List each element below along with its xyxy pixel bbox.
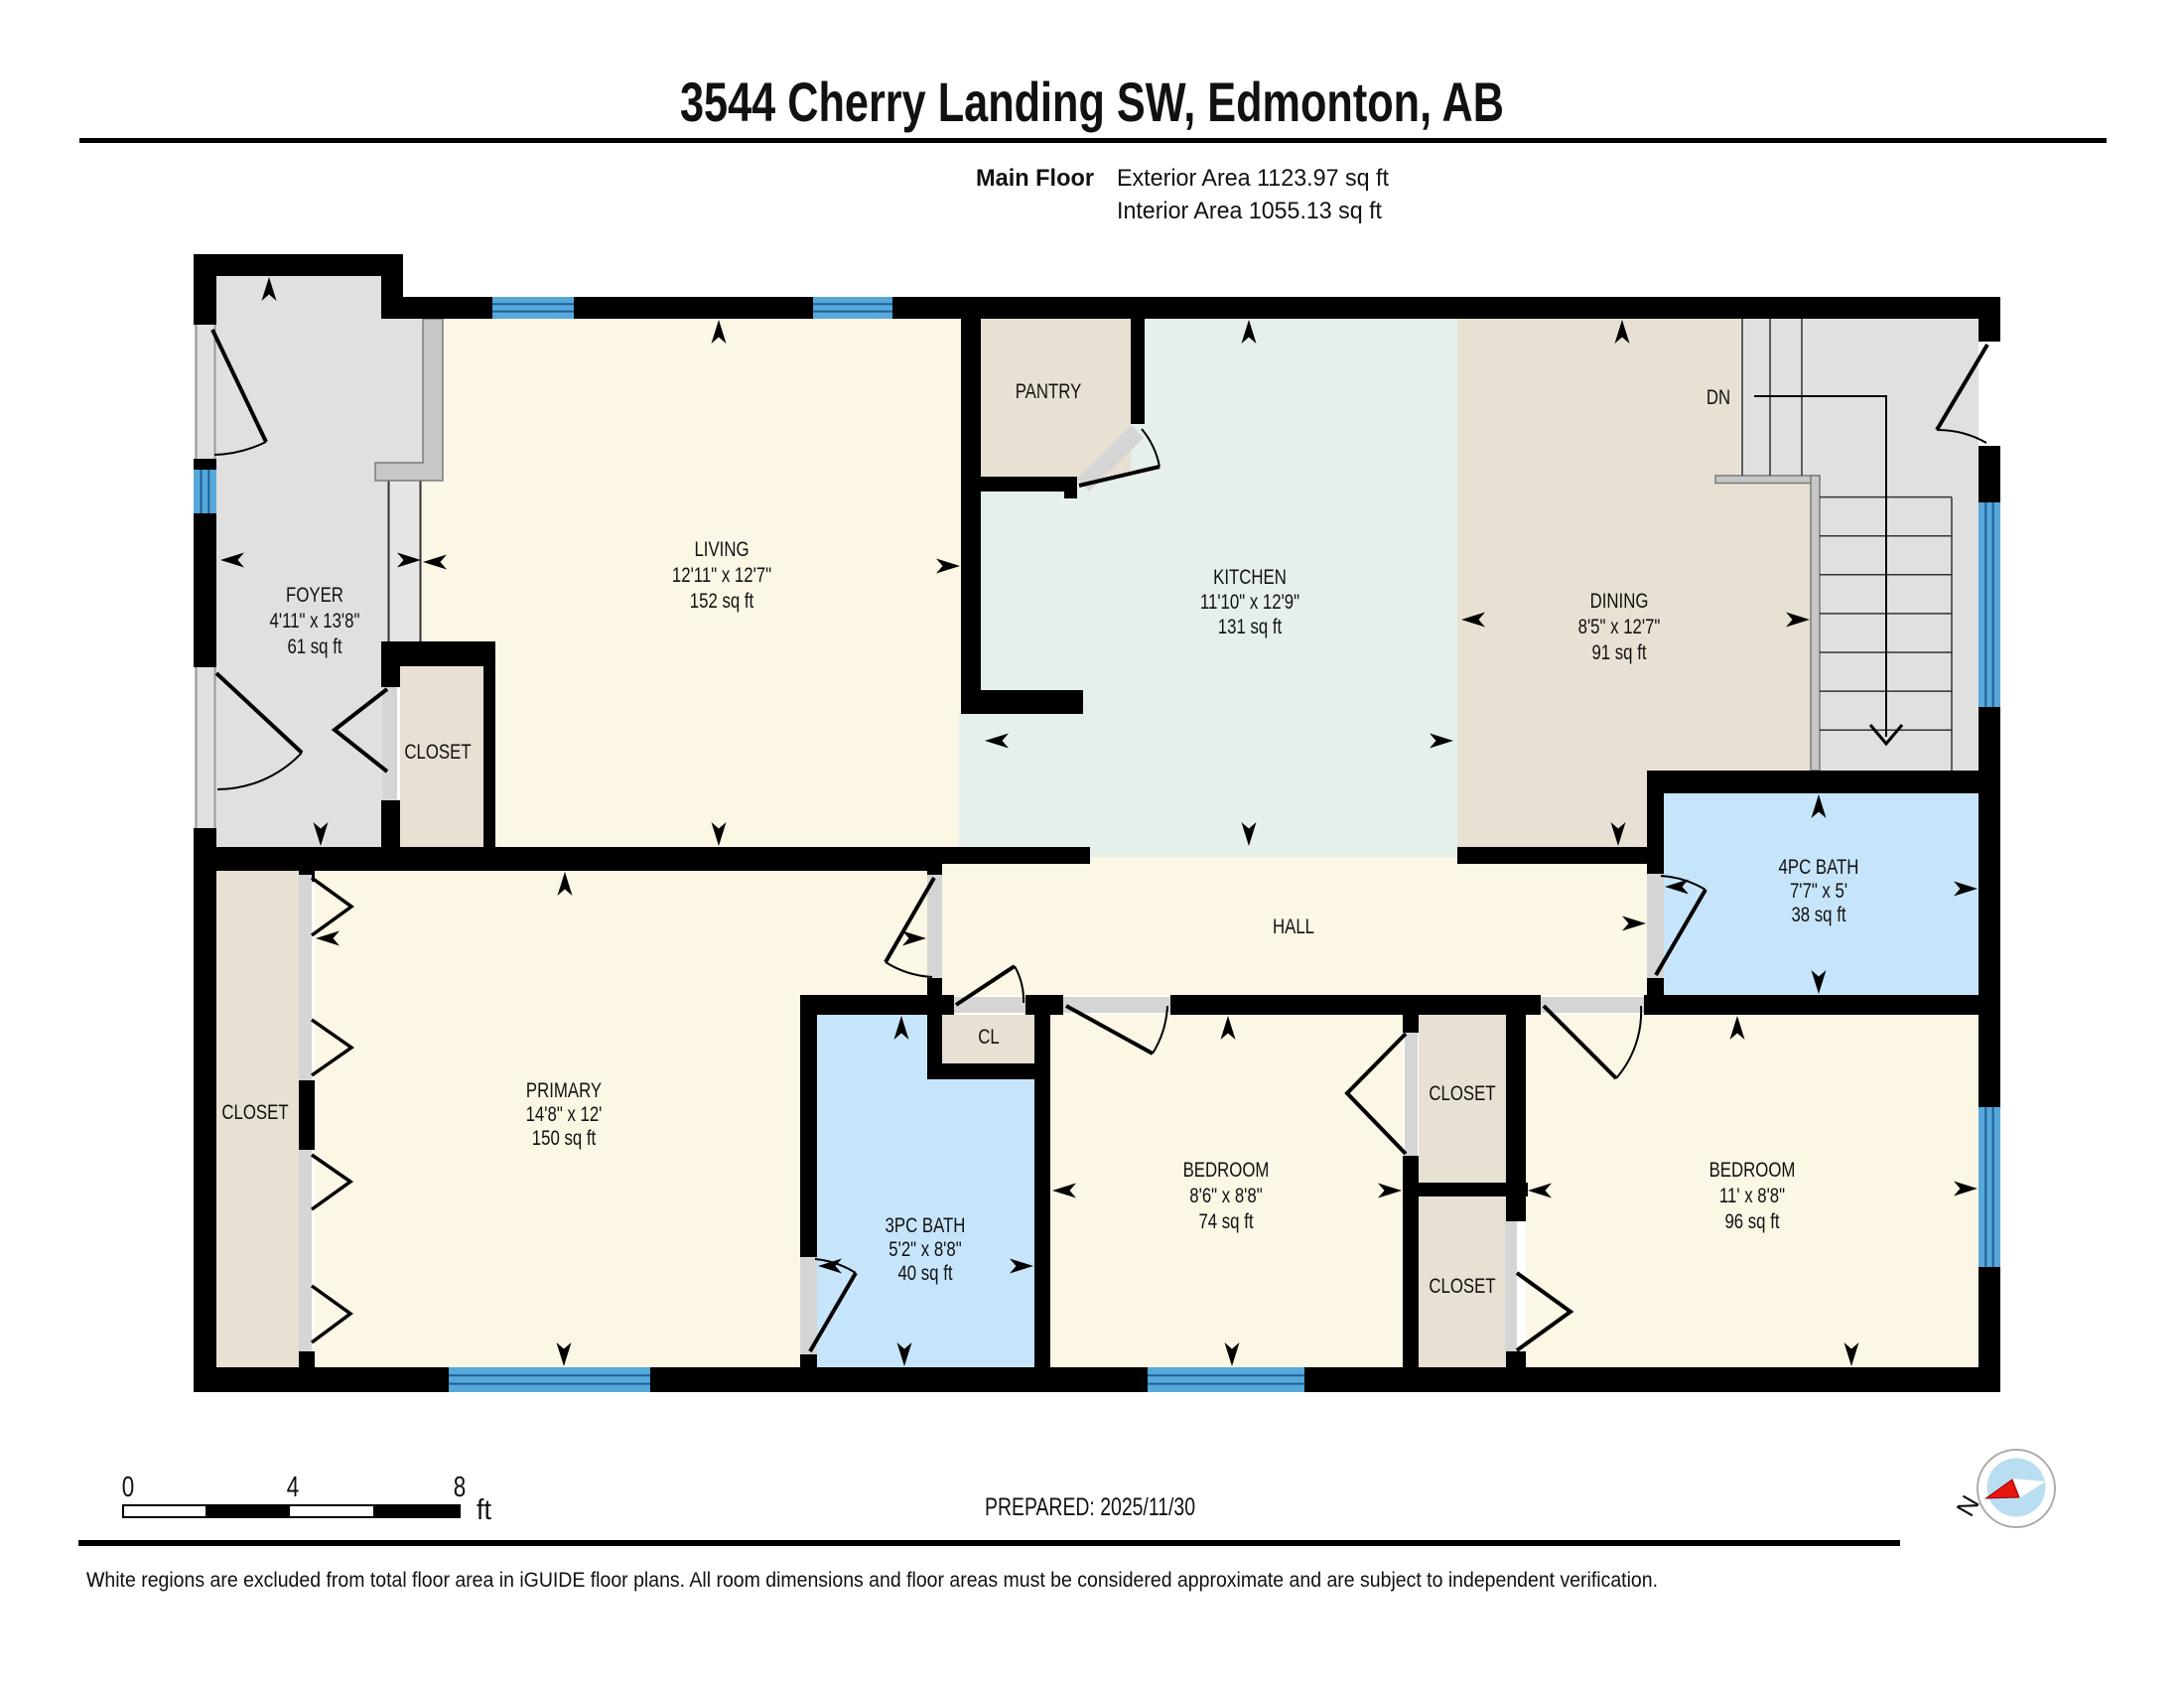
svg-text:5'2" x 8'8": 5'2" x 8'8" xyxy=(888,1238,961,1261)
svg-text:Main Floor: Main Floor xyxy=(976,165,1094,192)
svg-text:CLOSET: CLOSET xyxy=(221,1101,288,1124)
svg-text:11'10" x 12'9": 11'10" x 12'9" xyxy=(1200,591,1299,614)
svg-text:8'5" x 12'7": 8'5" x 12'7" xyxy=(1578,616,1661,638)
svg-text:74 sq ft: 74 sq ft xyxy=(1198,1210,1253,1233)
svg-text:DN: DN xyxy=(1706,386,1730,409)
svg-text:14'8" x 12': 14'8" x 12' xyxy=(526,1103,603,1126)
svg-text:7'7" x 5': 7'7" x 5' xyxy=(1790,880,1847,903)
svg-text:12'11" x 12'7": 12'11" x 12'7" xyxy=(672,564,771,587)
svg-text:ft: ft xyxy=(477,1494,491,1526)
svg-text:KITCHEN: KITCHEN xyxy=(1213,566,1287,589)
svg-text:152 sq ft: 152 sq ft xyxy=(690,590,754,613)
svg-text:W: W xyxy=(86,1568,105,1592)
svg-text:11' x 8'8": 11' x 8'8" xyxy=(1719,1185,1785,1207)
svg-text:BEDROOM: BEDROOM xyxy=(1709,1159,1796,1182)
svg-text:CLOSET: CLOSET xyxy=(404,741,471,764)
svg-text:BEDROOM: BEDROOM xyxy=(1183,1159,1270,1182)
svg-text:CLOSET: CLOSET xyxy=(1429,1082,1495,1105)
svg-text:3544 Cherry Landing SW, Edmont: 3544 Cherry Landing SW, Edmonton, AB xyxy=(680,70,1504,133)
svg-text:FOYER: FOYER xyxy=(286,584,343,607)
svg-text:96 sq ft: 96 sq ft xyxy=(1724,1210,1779,1233)
svg-text:38 sq ft: 38 sq ft xyxy=(1791,904,1845,926)
svg-text:0: 0 xyxy=(122,1472,135,1503)
svg-text:4'11" x 13'8": 4'11" x 13'8" xyxy=(270,610,360,633)
svg-text:40 sq ft: 40 sq ft xyxy=(897,1262,952,1285)
svg-text:8: 8 xyxy=(454,1472,467,1503)
svg-text:HALL: HALL xyxy=(1273,915,1314,938)
svg-text:61 sq ft: 61 sq ft xyxy=(287,635,341,658)
svg-text:CLOSET: CLOSET xyxy=(1429,1275,1495,1298)
svg-text:DINING: DINING xyxy=(1590,590,1649,613)
svg-text:4: 4 xyxy=(287,1472,300,1503)
svg-text:131 sq ft: 131 sq ft xyxy=(1218,616,1283,638)
svg-text:91 sq ft: 91 sq ft xyxy=(1591,641,1646,664)
svg-text:CL: CL xyxy=(978,1026,1000,1049)
svg-text:LIVING: LIVING xyxy=(694,538,749,561)
svg-text:150 sq ft: 150 sq ft xyxy=(532,1127,597,1150)
svg-text:3PC BATH: 3PC BATH xyxy=(886,1214,966,1237)
svg-text:Interior Area 1055.13 sq ft: Interior Area 1055.13 sq ft xyxy=(1117,198,1382,224)
svg-text:4PC BATH: 4PC BATH xyxy=(1779,856,1859,879)
svg-text:8'6" x 8'8": 8'6" x 8'8" xyxy=(1189,1185,1262,1207)
svg-text:PANTRY: PANTRY xyxy=(1016,380,1082,403)
svg-text:White regions are excluded fro: White regions are excluded from total fl… xyxy=(86,1568,1658,1592)
svg-text:PREPARED: 2025/11/30: PREPARED: 2025/11/30 xyxy=(985,1493,1195,1521)
svg-text:Exterior Area 1123.97 sq ft: Exterior Area 1123.97 sq ft xyxy=(1117,165,1389,192)
svg-text:PRIMARY: PRIMARY xyxy=(526,1079,602,1102)
